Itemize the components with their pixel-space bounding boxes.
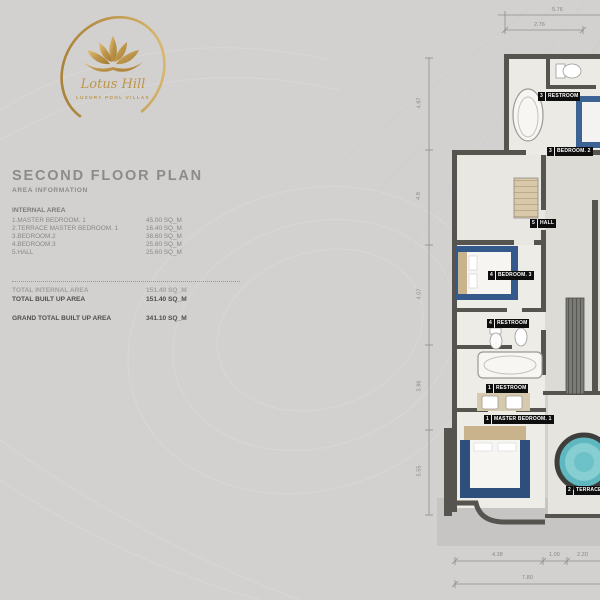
bathtub-master-icon <box>478 352 542 378</box>
room-tag-restroom-3: 3 RESTROOM <box>538 92 580 101</box>
room-name: TERRACE <box>574 486 600 495</box>
room-name: HALL <box>538 219 556 228</box>
room-tag-hall: 5 HALL <box>530 219 556 228</box>
dim-bottom-3: 2.20 <box>577 552 588 558</box>
sink-restroom4-icon <box>515 328 527 346</box>
room-tag-terrace: 2 TERRACE <box>566 486 600 495</box>
room-tag-restroom-4: 4 RESTROOM <box>487 319 529 328</box>
jacuzzi-icon <box>557 435 600 489</box>
bed-master-icon <box>460 426 530 498</box>
room-tag-bedroom-3: 4 BEDROOM. 3 <box>488 271 534 280</box>
room-number: 1 <box>486 384 493 393</box>
dim-bottom-1: 4.38 <box>492 552 503 558</box>
wardrobe-icon <box>566 298 584 394</box>
room-number: 4 <box>487 319 494 328</box>
room-name: RESTROOM <box>546 92 581 101</box>
double-sink-icon <box>477 393 530 411</box>
room-name: BEDROOM. 2 <box>555 147 593 156</box>
floor-plan-drawing <box>0 0 600 600</box>
room-number: 1 <box>484 415 491 424</box>
dim-left-5: 5.55 <box>416 466 422 477</box>
dim-left-3: 4.07 <box>416 289 422 300</box>
dim-top-outer: 5.76 <box>552 7 563 13</box>
dim-left-2: 4.8 <box>416 192 422 200</box>
room-number: 2 <box>566 486 573 495</box>
room-name: RESTROOM <box>494 384 529 393</box>
toilet-restroom4-icon <box>490 328 502 349</box>
room-name: MASTER BEDROOM. 1 <box>492 415 554 424</box>
room-tag-restroom-1: 1 RESTROOM <box>486 384 528 393</box>
dim-bottom-2: 1.00 <box>549 552 560 558</box>
room-name: BEDROOM. 3 <box>496 271 534 280</box>
room-number: 4 <box>488 271 495 280</box>
room-name: RESTROOM <box>495 319 530 328</box>
dim-left-1: 4.97 <box>416 98 422 109</box>
room-number: 3 <box>538 92 545 101</box>
room-tag-bedroom-2: 3 BEDROOM. 2 <box>547 147 593 156</box>
staircase <box>514 178 538 218</box>
room-tag-master-bedroom: 1 MASTER BEDROOM. 1 <box>484 415 554 424</box>
dim-left-4: 3.96 <box>416 381 422 392</box>
dim-bottom-total: 7.80 <box>522 575 533 581</box>
room-number: 3 <box>547 147 554 156</box>
floor-plan-sheet: Lotus Hill LUXURY POOL VILLAS SECOND FLO… <box>0 0 600 600</box>
dim-top-inner: 2.76 <box>534 22 545 28</box>
bed-bedroom2-icon <box>576 96 600 148</box>
room-number: 5 <box>530 219 537 228</box>
toilet-top-icon <box>556 64 581 78</box>
